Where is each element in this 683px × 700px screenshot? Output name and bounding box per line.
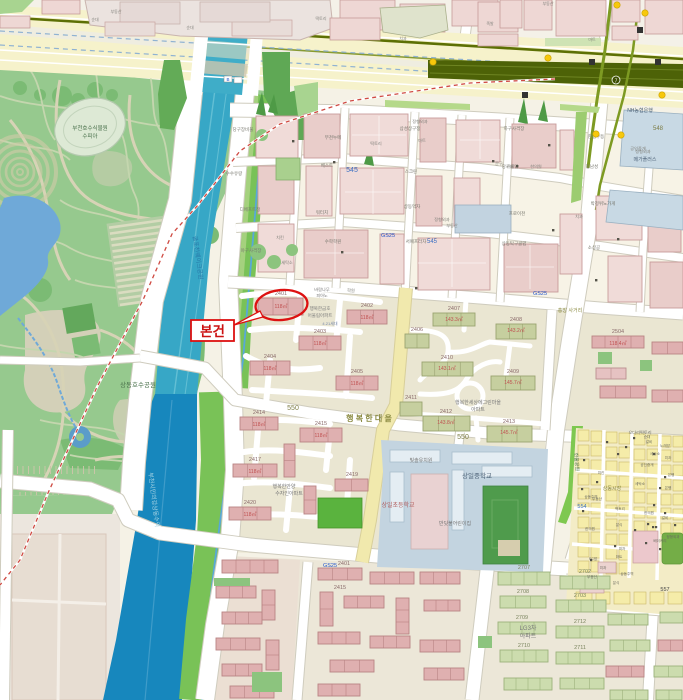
svg-text:2406: 2406 bbox=[411, 327, 423, 333]
svg-text:반딧불어린이집: 반딧불어린이집 bbox=[439, 520, 471, 527]
svg-text:한의원: 한의원 bbox=[530, 163, 542, 170]
svg-text:아파트: 아파트 bbox=[520, 632, 537, 640]
svg-text:2710: 2710 bbox=[518, 643, 530, 649]
svg-text:4.21세대: 4.21세대 bbox=[322, 320, 337, 326]
svg-text:GS25: GS25 bbox=[381, 233, 395, 239]
svg-text:치킨: 치킨 bbox=[276, 234, 284, 241]
svg-text:어울림아파트: 어울림아파트 bbox=[308, 312, 333, 319]
svg-text:홍방 사거리: 홍방 사거리 bbox=[558, 307, 582, 314]
svg-text:치과: 치과 bbox=[575, 213, 583, 220]
svg-text:동남성: 동남성 bbox=[586, 163, 598, 169]
svg-text:학원: 학원 bbox=[347, 287, 355, 294]
svg-text:상일중학교: 상일중학교 bbox=[462, 471, 492, 480]
svg-text:545: 545 bbox=[427, 239, 438, 245]
svg-text:세탁소: 세탁소 bbox=[650, 451, 661, 456]
svg-text:상동먹자: 상동먹자 bbox=[404, 203, 421, 210]
svg-text:2410: 2410 bbox=[441, 355, 453, 361]
svg-text:정형외과: 정형외과 bbox=[635, 148, 651, 155]
svg-text:118.4㎡: 118.4㎡ bbox=[609, 340, 626, 347]
svg-text:서예프라자: 서예프라자 bbox=[406, 238, 428, 245]
svg-text:마트: 마트 bbox=[588, 36, 596, 42]
svg-text:550: 550 bbox=[287, 405, 299, 412]
svg-text:118㎡: 118㎡ bbox=[264, 365, 277, 372]
svg-text:은행: 은행 bbox=[665, 485, 672, 490]
svg-text:2504: 2504 bbox=[612, 329, 624, 335]
svg-text:수자인아파트: 수자인아파트 bbox=[275, 490, 303, 497]
svg-text:부동산: 부동산 bbox=[446, 222, 458, 229]
svg-text:분식: 분식 bbox=[613, 580, 620, 585]
svg-text:치과: 치과 bbox=[665, 455, 672, 460]
svg-text:118㎡: 118㎡ bbox=[253, 421, 266, 428]
svg-text:2414: 2414 bbox=[253, 410, 265, 416]
svg-text:한의원: 한의원 bbox=[585, 526, 595, 531]
svg-text:상동시장: 상동시장 bbox=[603, 485, 622, 492]
svg-text:세탁소: 세탁소 bbox=[635, 481, 646, 486]
svg-text:143.2㎡: 143.2㎡ bbox=[507, 327, 525, 334]
svg-text:118㎡: 118㎡ bbox=[244, 511, 257, 518]
svg-text:145.7㎡: 145.7㎡ bbox=[500, 429, 518, 436]
svg-text:118㎡: 118㎡ bbox=[275, 303, 288, 310]
svg-text:143.3㎡: 143.3㎡ bbox=[445, 316, 463, 323]
svg-text:부천누메: 부천누메 bbox=[325, 134, 342, 141]
svg-text:갈비: 갈비 bbox=[646, 439, 653, 444]
svg-text:베이커리: 베이커리 bbox=[653, 538, 666, 543]
svg-text:2415: 2415 bbox=[334, 585, 346, 591]
svg-text:행복한세상에그린마을: 행복한세상에그린마을 bbox=[455, 399, 501, 406]
svg-text:2405: 2405 bbox=[351, 369, 363, 375]
svg-text:수학학원: 수학학원 bbox=[325, 238, 342, 245]
svg-text:2401: 2401 bbox=[275, 291, 287, 297]
svg-text:2420: 2420 bbox=[244, 500, 256, 506]
svg-text:2403: 2403 bbox=[314, 329, 326, 335]
svg-text:스크린: 스크린 bbox=[405, 168, 417, 174]
svg-text:118㎡: 118㎡ bbox=[314, 340, 327, 347]
svg-text:행복한안양: 행복한안양 bbox=[272, 483, 295, 490]
svg-text:2703: 2703 bbox=[574, 593, 586, 599]
svg-text:GS25: GS25 bbox=[533, 291, 547, 297]
svg-text:2404: 2404 bbox=[264, 354, 276, 360]
svg-text:2411: 2411 bbox=[405, 395, 417, 401]
svg-text:행 복 한 대 을: 행 복 한 대 을 bbox=[346, 413, 392, 423]
svg-text:베스트: 베스트 bbox=[321, 162, 333, 169]
svg-text:떡토리: 떡토리 bbox=[370, 140, 382, 147]
svg-text:557: 557 bbox=[660, 587, 669, 593]
svg-text:부동산: 부동산 bbox=[592, 496, 603, 501]
svg-text:워터치: 워터치 bbox=[316, 209, 328, 216]
svg-text:소상공: 소상공 bbox=[588, 244, 600, 250]
svg-text:545: 545 bbox=[346, 167, 358, 174]
svg-text:공인중개: 공인중개 bbox=[640, 462, 653, 467]
svg-text:갈비: 갈비 bbox=[662, 515, 669, 520]
svg-text:상동탁구클럽: 상동탁구클럽 bbox=[502, 240, 527, 247]
svg-text:부동산: 부동산 bbox=[110, 8, 121, 14]
svg-text:7: 7 bbox=[615, 79, 618, 85]
svg-text:부동산: 부동산 bbox=[587, 574, 598, 579]
svg-text:2712: 2712 bbox=[574, 619, 586, 625]
svg-text:2415: 2415 bbox=[315, 421, 327, 427]
svg-text:상일초등학교: 상일초등학교 bbox=[381, 501, 415, 509]
svg-text:바람나무: 바람나무 bbox=[314, 286, 330, 293]
svg-text:LG3차: LG3차 bbox=[520, 624, 537, 632]
svg-text:118㎡: 118㎡ bbox=[315, 432, 328, 439]
svg-text:세탁소: 세탁소 bbox=[281, 259, 293, 266]
svg-text:순대: 순대 bbox=[91, 16, 99, 22]
svg-text:떡토리: 떡토리 bbox=[315, 15, 326, 21]
svg-text:143.1㎡: 143.1㎡ bbox=[438, 365, 456, 372]
svg-text:피아노: 피아노 bbox=[316, 292, 328, 299]
svg-text:피자: 피자 bbox=[619, 546, 626, 551]
svg-text:한의원: 한의원 bbox=[644, 510, 654, 515]
svg-text:145.7㎡: 145.7㎡ bbox=[504, 379, 522, 386]
svg-text:118㎡: 118㎡ bbox=[351, 380, 364, 387]
svg-text:치과: 치과 bbox=[399, 35, 407, 41]
svg-text:카페: 카페 bbox=[506, 163, 514, 170]
svg-text:B: B bbox=[226, 77, 229, 82]
svg-text:2417: 2417 bbox=[249, 457, 261, 463]
svg-text:상동주역: 상동주역 bbox=[620, 571, 633, 576]
svg-text:디에프트정: 디에프트정 bbox=[240, 206, 261, 213]
svg-text:박정위노가게: 박정위노가게 bbox=[591, 200, 616, 207]
svg-text:2402: 2402 bbox=[361, 303, 373, 309]
svg-text:2408: 2408 bbox=[510, 317, 522, 323]
svg-text:548: 548 bbox=[653, 126, 664, 132]
svg-text:아파트: 아파트 bbox=[471, 406, 485, 413]
svg-text:2413: 2413 bbox=[503, 419, 515, 425]
svg-text:2412: 2412 bbox=[440, 409, 452, 415]
svg-text:2419: 2419 bbox=[346, 472, 358, 478]
svg-text:118㎡: 118㎡ bbox=[249, 468, 262, 475]
svg-text:삼성상구정: 삼성상구정 bbox=[400, 125, 421, 132]
svg-text:치킨: 치킨 bbox=[598, 470, 605, 475]
svg-text:족발: 족발 bbox=[486, 20, 494, 26]
svg-text:정형외과: 정형외과 bbox=[434, 216, 450, 223]
svg-text:2711: 2711 bbox=[574, 645, 586, 651]
svg-text:순대: 순대 bbox=[186, 24, 194, 30]
svg-text:2709: 2709 bbox=[516, 615, 528, 621]
svg-text:프로이천: 프로이천 bbox=[509, 210, 526, 217]
svg-text:행복한금호: 행복한금호 bbox=[310, 305, 331, 312]
svg-text:상동호수공원: 상동호수공원 bbox=[120, 380, 156, 389]
svg-text:야구사격장: 야구사격장 bbox=[241, 247, 262, 254]
svg-text:수수유랑: 수수유랑 bbox=[226, 170, 243, 177]
svg-text:본건: 본건 bbox=[200, 323, 225, 339]
svg-text:노래방: 노래방 bbox=[660, 443, 671, 448]
svg-text:빛솔유치원: 빛솔유치원 bbox=[409, 457, 432, 464]
svg-text:수피아: 수피아 bbox=[82, 132, 97, 140]
svg-text:554: 554 bbox=[577, 504, 586, 510]
svg-text:2409: 2409 bbox=[507, 369, 519, 375]
svg-text:118㎡: 118㎡ bbox=[361, 314, 374, 321]
svg-text:부동산: 부동산 bbox=[542, 0, 553, 6]
svg-text:GS25: GS25 bbox=[323, 563, 337, 569]
svg-text:550: 550 bbox=[457, 434, 469, 441]
svg-text:순대: 순대 bbox=[644, 434, 651, 439]
svg-text:은행: 은행 bbox=[668, 472, 675, 477]
svg-text:NH농협은행: NH농협은행 bbox=[627, 107, 653, 114]
svg-text:부천호수식물원: 부천호수식물원 bbox=[72, 124, 107, 132]
svg-text:마트: 마트 bbox=[616, 554, 623, 559]
svg-text:143.8㎡: 143.8㎡ bbox=[437, 419, 455, 426]
svg-text:메가플러스: 메가플러스 bbox=[633, 156, 656, 163]
svg-text:2401: 2401 bbox=[338, 561, 350, 567]
svg-text:당구장비물: 당구장비물 bbox=[233, 126, 254, 133]
svg-text:하구사격장: 하구사격장 bbox=[504, 125, 525, 132]
svg-text:정형외과: 정형외과 bbox=[666, 534, 680, 539]
svg-text:2707: 2707 bbox=[518, 565, 530, 571]
svg-text:떡토리: 떡토리 bbox=[615, 506, 625, 511]
svg-text:마트: 마트 bbox=[418, 137, 426, 144]
svg-text:2407: 2407 bbox=[448, 306, 460, 312]
svg-text:치과: 치과 bbox=[600, 565, 607, 570]
svg-text:2708: 2708 bbox=[517, 589, 529, 595]
svg-text:분식: 분식 bbox=[616, 522, 623, 527]
svg-text:정형외과: 정형외과 bbox=[412, 118, 428, 125]
